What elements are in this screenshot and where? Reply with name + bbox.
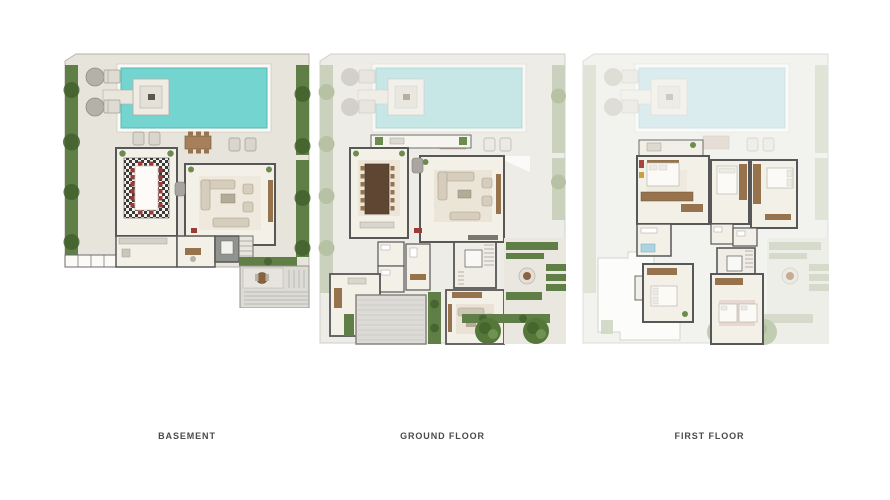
- garage: [344, 292, 441, 344]
- basement-floorplan: [63, 52, 311, 308]
- master-bedroom: [637, 156, 709, 224]
- first-floorplan: [581, 52, 838, 345]
- ground-floorplan: [318, 52, 567, 345]
- garden-tree: [523, 318, 549, 344]
- hedge-right: [295, 65, 311, 257]
- hedge-right-faded: [551, 65, 566, 220]
- majlis-room: [116, 148, 177, 236]
- bath-utility-rooms: [378, 242, 430, 292]
- living-room: [175, 164, 275, 245]
- bedroom-4: [635, 264, 693, 322]
- floor-label-basement: BASEMENT: [63, 431, 311, 445]
- floor-label-ground: GROUND FLOOR: [318, 431, 567, 445]
- bedroom-5: [711, 274, 763, 344]
- floorplan-sheet: BASEMENT GROUND FLOOR FIRST FLOOR: [0, 0, 890, 500]
- bedroom-3: [751, 160, 797, 228]
- floor-label-first: FIRST FLOOR: [581, 431, 838, 445]
- front-terrace: [371, 135, 471, 148]
- bedroom-2: [711, 160, 749, 224]
- hedge-left-faded: [319, 65, 335, 293]
- master-balcony: [639, 140, 703, 156]
- stair-core: [454, 242, 496, 288]
- swimming-pool: [103, 64, 271, 132]
- hedge-left: [63, 65, 80, 257]
- garden-tree: [475, 318, 501, 344]
- dining-room: [350, 148, 408, 238]
